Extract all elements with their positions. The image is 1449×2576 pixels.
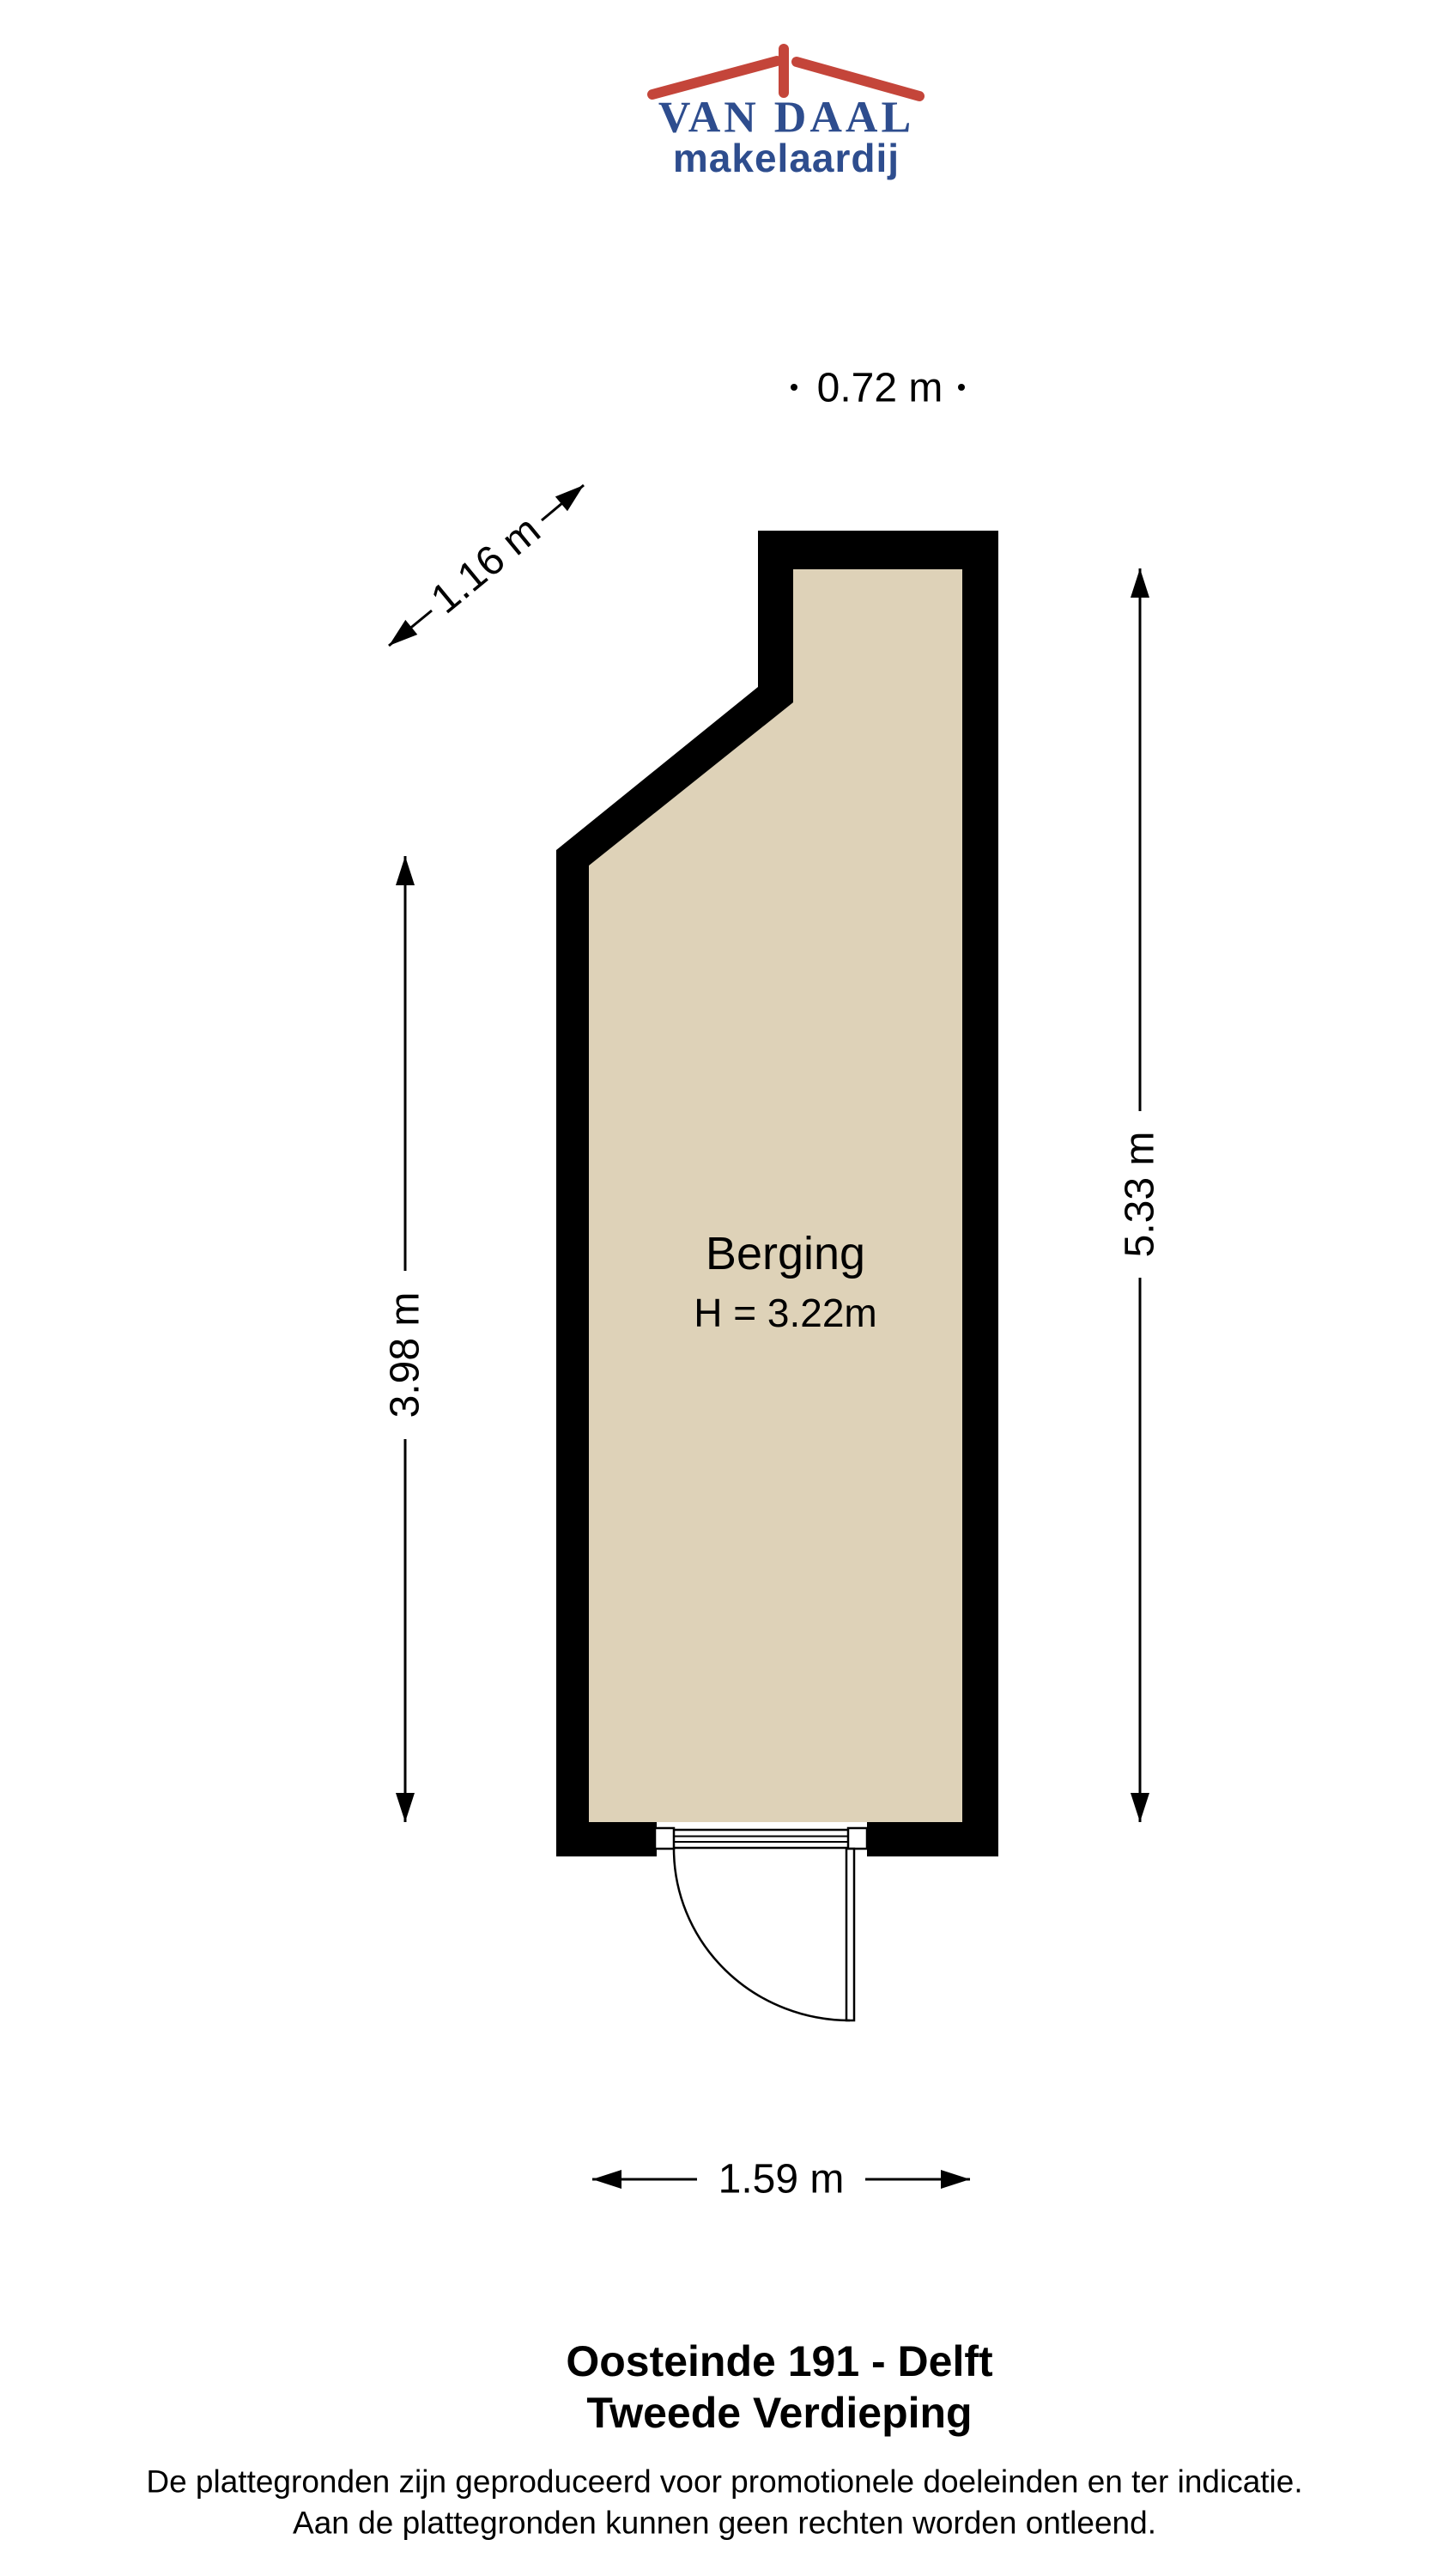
room-height-label: H = 3.22m	[694, 1291, 877, 1335]
dim-diagonal-line-lower	[389, 611, 432, 646]
dim-diagonal-line-upper	[542, 485, 584, 520]
disclaimer-line1: De plattegronden zijn geproduceerd voor …	[146, 2464, 1302, 2500]
dim-top-tick-left	[791, 384, 797, 391]
dim-left: 3.98 m	[383, 856, 428, 1822]
dim-right: 5.33 m	[1118, 568, 1163, 1822]
roof-right-slope	[797, 62, 919, 96]
door-swing-arc	[674, 1849, 850, 2020]
page-title-floor: Tweede Verdieping	[586, 2389, 972, 2437]
dim-left-label: 3.98 m	[383, 1292, 428, 1419]
page-title-address: Oosteinde 191 - Delft	[566, 2337, 993, 2385]
door-threshold	[657, 1830, 867, 1848]
door-post-right	[848, 1828, 867, 1849]
door	[655, 1822, 867, 2020]
dim-bottom: 1.59 m	[592, 2157, 970, 2202]
door-leaf	[846, 1849, 854, 2020]
dim-top-tick-right	[958, 384, 965, 391]
dim-right-label: 5.33 m	[1118, 1132, 1163, 1258]
disclaimer-line2: Aan de plattegronden kunnen geen rechten…	[293, 2506, 1156, 2541]
roof-left-slope	[652, 61, 777, 94]
dim-bottom-label: 1.59 m	[718, 2157, 845, 2202]
logo-roof-icon	[652, 49, 919, 96]
dim-top-label: 0.72 m	[817, 366, 943, 411]
logo-title: VAN DAAL	[658, 94, 914, 143]
logo-subtitle: makelaardij	[673, 136, 900, 180]
door-post-left	[655, 1828, 674, 1849]
room-floor	[589, 569, 962, 1822]
dim-diagonal: 1.16 m	[389, 485, 584, 646]
dim-top: 0.72 m	[791, 366, 965, 411]
logo: VAN DAAL makelaardij	[652, 49, 919, 180]
dim-diagonal-label: 1.16 m	[423, 507, 549, 623]
room-label: Berging	[706, 1228, 865, 1279]
floorplan-page: VAN DAAL makelaardij 0.72 m 1.16 m	[0, 0, 1449, 2576]
floor-plan-canvas: VAN DAAL makelaardij 0.72 m 1.16 m	[0, 0, 1449, 2576]
